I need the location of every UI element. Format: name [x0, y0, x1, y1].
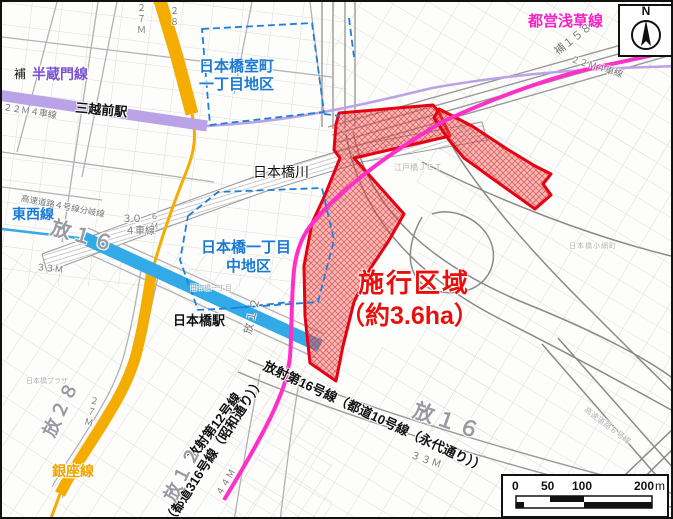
ginza-line-label: 銀座線 — [52, 464, 94, 478]
scale-bar: 0 50 100 200 m — [501, 474, 669, 518]
lane-4-label: ４車線 — [125, 227, 155, 237]
width-27m-north-label: ２７Ｍ — [136, 3, 145, 36]
nihonbashi-river-label: 日本橋川 — [253, 165, 309, 179]
scale-tick-50: 50 — [541, 479, 554, 493]
project-area-label-line1: 施行区域 — [358, 270, 470, 296]
edobashi-jct-label: 江戸橋ＪＣＴ — [394, 164, 442, 172]
koamicho-label: 日本橋小網町 — [569, 243, 617, 250]
scale-unit: m — [655, 479, 665, 493]
compass-rose-icon — [620, 16, 672, 54]
naka-district-label-line1: 日本橋一丁目 — [201, 240, 291, 255]
map-base — [2, 2, 673, 519]
scale-tick-200: 200 — [634, 479, 654, 493]
hanzomon-line-label: 半蔵門線 — [32, 67, 88, 81]
tozai-line-label: 東西線 — [12, 207, 54, 221]
width-30-label: ３０ — [122, 215, 142, 225]
ho-road-prefix-label: 補 — [14, 68, 26, 80]
city-planning-map: 都営浅草線 補 半蔵門線 三越前駅 ２２Ｍ４車線 ２７Ｍ ２８ 日本橋室町 一丁… — [0, 0, 673, 519]
naka-district-label-line2: 中地区 — [226, 259, 271, 274]
north-compass: N — [618, 4, 673, 57]
north-label: N — [620, 6, 672, 16]
project-area-label-line2: （約3.6ha） — [340, 304, 479, 329]
scale-bar-graphic — [503, 494, 667, 518]
nihonbashi-1chome-label: 日本橋一丁目 — [190, 285, 232, 292]
scale-tick-0: 0 — [512, 479, 519, 493]
scale-tick-100: 100 — [572, 479, 592, 493]
nihonbashi-station-label: 日本橋駅 — [173, 314, 225, 327]
muromachi-district-label-line1: 日本橋室町 — [199, 59, 274, 74]
muromachi-district-label-line2: 一丁目地区 — [199, 77, 274, 92]
route-28-north-label: ２８ — [169, 6, 178, 28]
